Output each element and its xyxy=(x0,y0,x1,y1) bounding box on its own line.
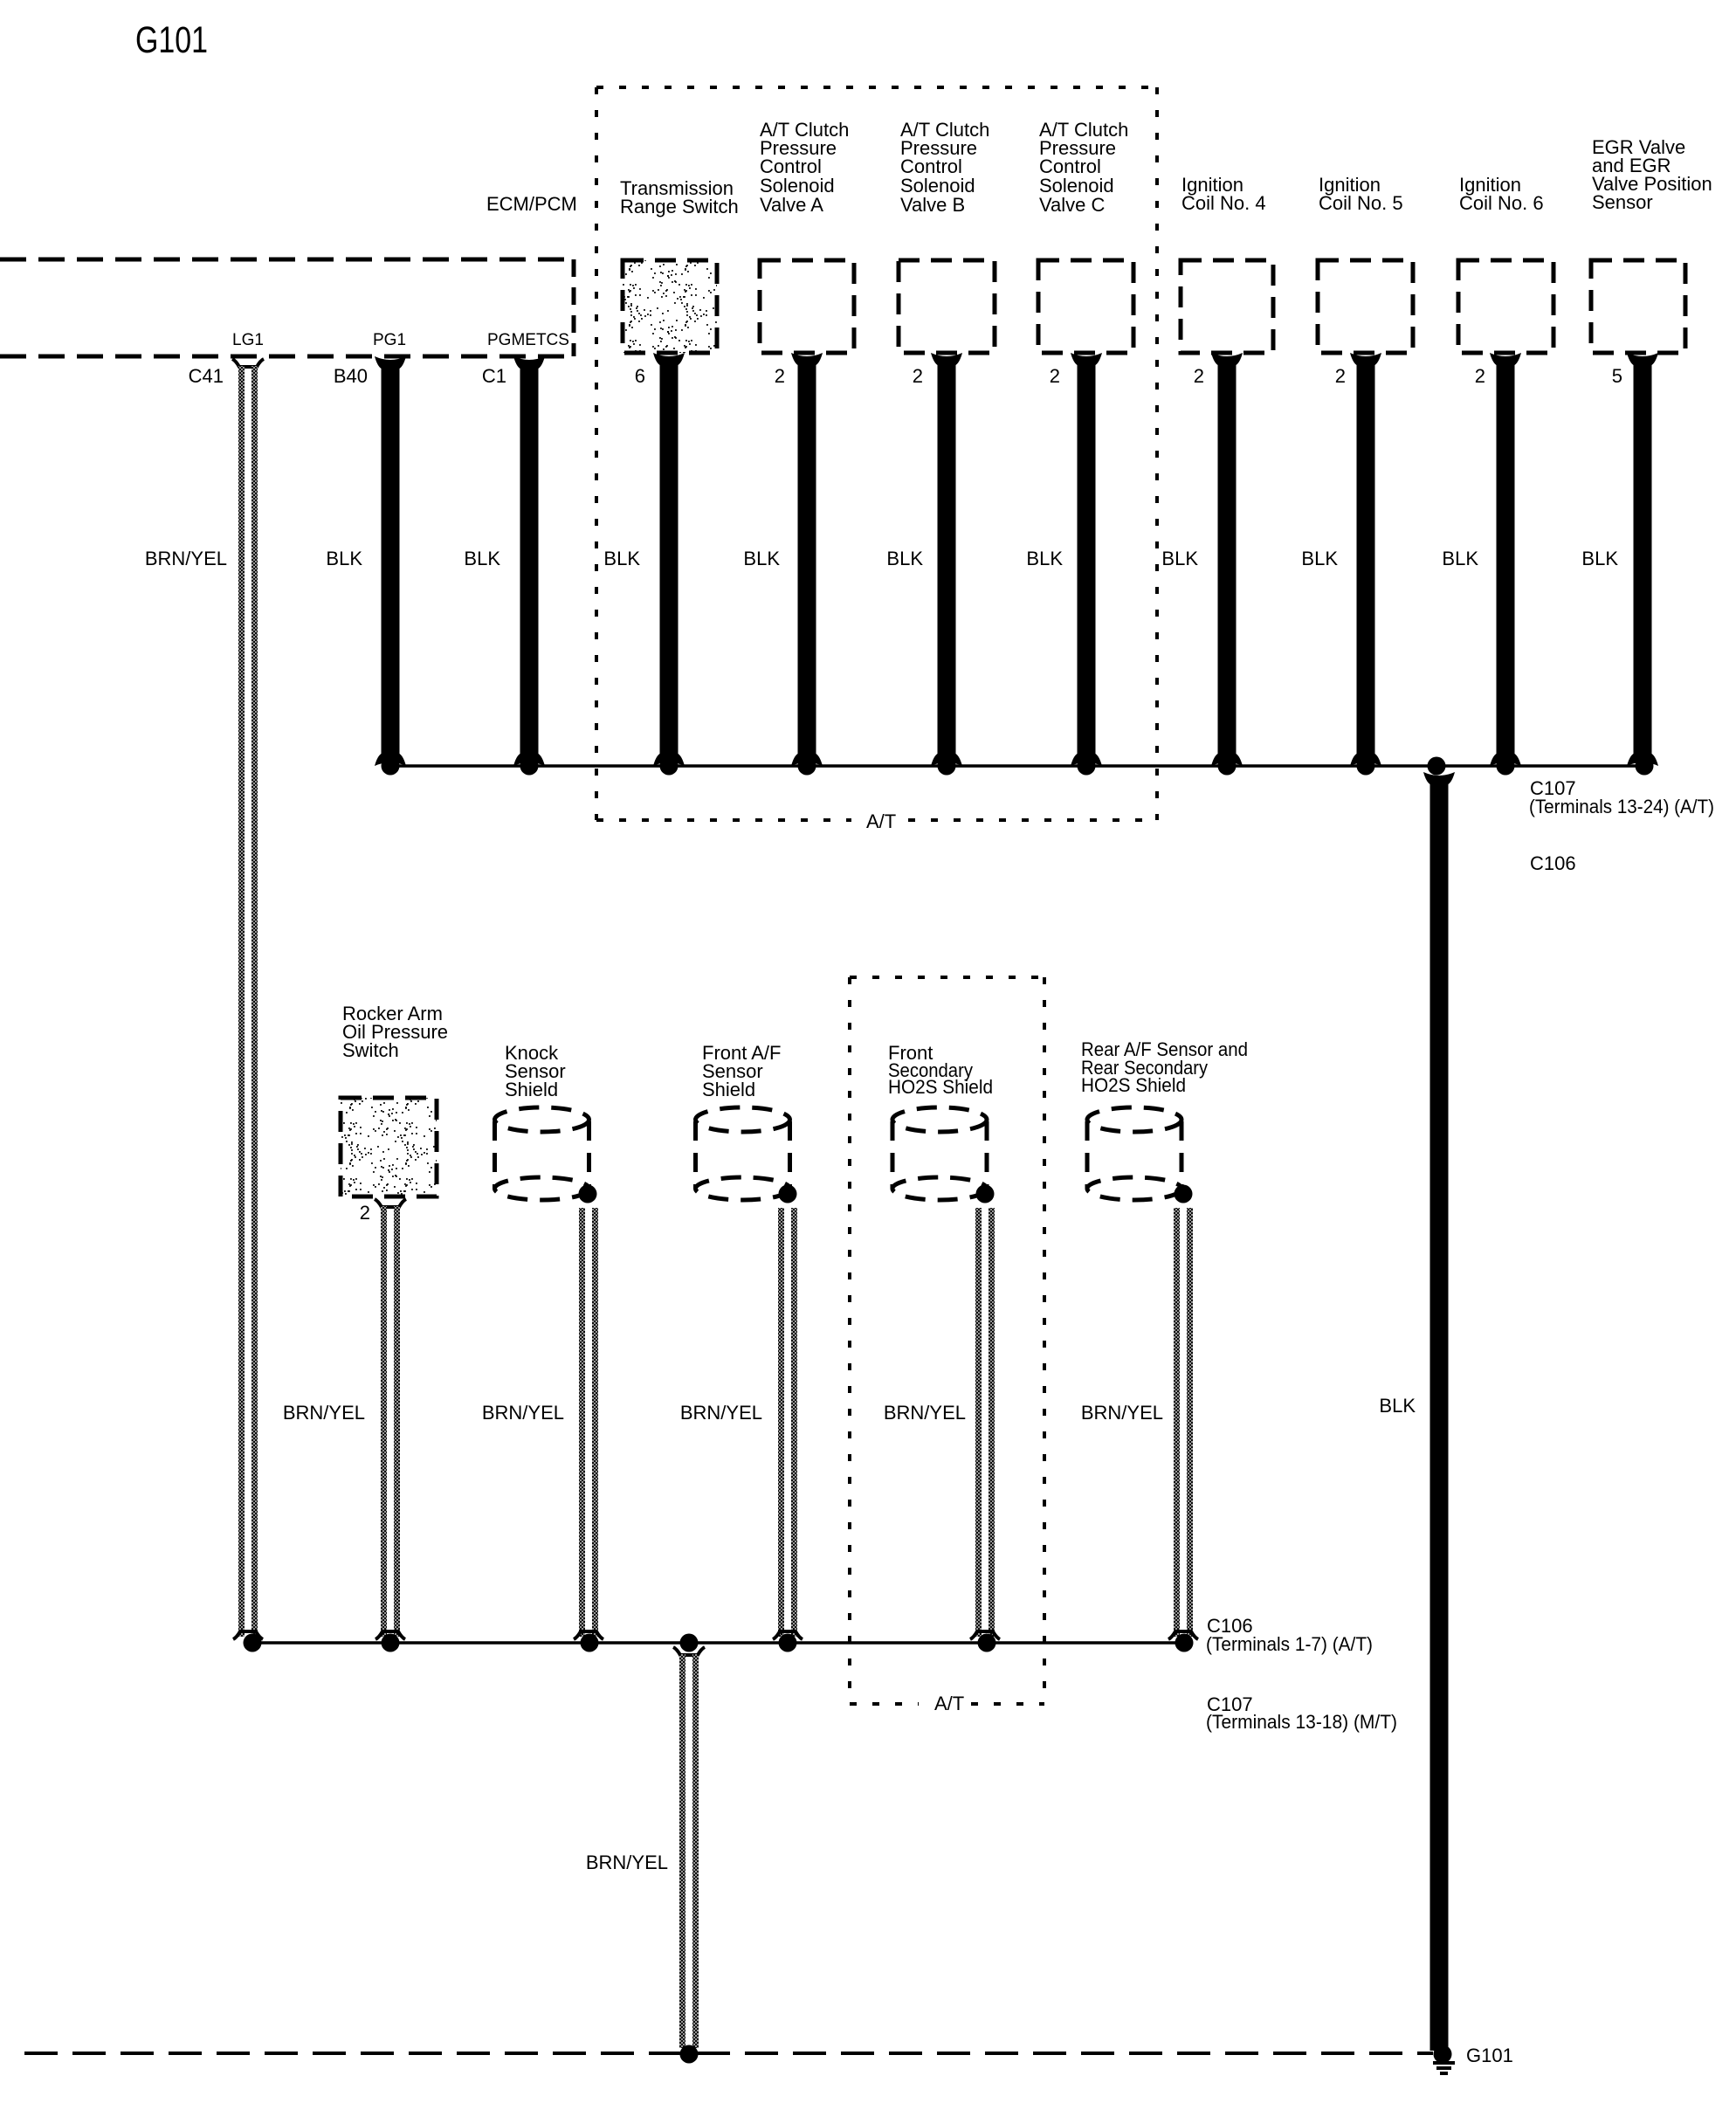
svg-text:2: 2 xyxy=(775,365,785,387)
svg-text:ECM/PCM: ECM/PCM xyxy=(486,193,577,215)
svg-text:(Terminals 1-7) (A/T): (Terminals 1-7) (A/T) xyxy=(1206,1633,1373,1655)
svg-text:2: 2 xyxy=(913,365,923,387)
svg-text:5: 5 xyxy=(1612,365,1622,387)
svg-text:Coil No. 4: Coil No. 4 xyxy=(1181,192,1266,214)
svg-text:PGMETCS: PGMETCS xyxy=(487,331,569,349)
svg-text:BLK: BLK xyxy=(1026,548,1063,569)
svg-text:BLK: BLK xyxy=(1301,548,1338,569)
svg-text:(Terminals 13-24) (A/T): (Terminals 13-24) (A/T) xyxy=(1529,796,1714,817)
svg-text:BLK: BLK xyxy=(326,548,362,569)
svg-text:Valve C: Valve C xyxy=(1039,194,1106,216)
svg-text:C1: C1 xyxy=(482,365,506,387)
svg-text:Coil No. 5: Coil No. 5 xyxy=(1319,192,1403,214)
svg-text:BLK: BLK xyxy=(1161,548,1198,569)
svg-text:BLK: BLK xyxy=(1581,548,1618,569)
svg-text:2: 2 xyxy=(1194,365,1204,387)
svg-text:BLK: BLK xyxy=(886,548,923,569)
svg-text:HO2S Shield: HO2S Shield xyxy=(1081,1074,1186,1096)
svg-text:6: 6 xyxy=(635,365,645,387)
svg-text:Switch: Switch xyxy=(342,1039,399,1061)
svg-text:BLK: BLK xyxy=(1379,1395,1416,1417)
svg-text:BLK: BLK xyxy=(603,548,640,569)
svg-text:2: 2 xyxy=(1050,365,1060,387)
svg-text:BRN/YEL: BRN/YEL xyxy=(680,1402,762,1424)
svg-text:2: 2 xyxy=(360,1202,370,1224)
svg-text:LG1: LG1 xyxy=(232,331,264,349)
svg-text:BRN/YEL: BRN/YEL xyxy=(1081,1402,1163,1424)
svg-text:Valve A: Valve A xyxy=(760,194,823,216)
svg-text:A/T: A/T xyxy=(934,1693,964,1714)
svg-text:PG1: PG1 xyxy=(373,331,406,349)
svg-text:HO2S Shield: HO2S Shield xyxy=(888,1076,993,1098)
svg-text:C106: C106 xyxy=(1530,852,1576,874)
svg-text:Shield: Shield xyxy=(702,1079,755,1100)
svg-text:Shield: Shield xyxy=(505,1079,558,1100)
svg-text:B40: B40 xyxy=(334,365,368,387)
svg-text:Valve B: Valve B xyxy=(900,194,965,216)
svg-text:BRN/YEL: BRN/YEL xyxy=(586,1852,668,1873)
svg-text:2: 2 xyxy=(1475,365,1485,387)
svg-text:BRN/YEL: BRN/YEL xyxy=(145,548,227,569)
svg-text:BLK: BLK xyxy=(1442,548,1478,569)
svg-text:BLK: BLK xyxy=(743,548,780,569)
svg-text:G101: G101 xyxy=(1466,2045,1513,2066)
svg-text:(Terminals 13-18) (M/T): (Terminals 13-18) (M/T) xyxy=(1206,1711,1397,1733)
svg-text:A/T: A/T xyxy=(866,810,896,832)
svg-text:Range Switch: Range Switch xyxy=(620,196,739,217)
svg-text:BRN/YEL: BRN/YEL xyxy=(283,1402,365,1424)
svg-text:BRN/YEL: BRN/YEL xyxy=(482,1402,564,1424)
svg-text:C41: C41 xyxy=(189,365,224,387)
svg-text:Coil No. 6: Coil No. 6 xyxy=(1459,192,1544,214)
svg-text:BRN/YEL: BRN/YEL xyxy=(884,1402,966,1424)
svg-text:2: 2 xyxy=(1335,365,1346,387)
svg-text:G101: G101 xyxy=(135,19,208,61)
svg-text:Sensor: Sensor xyxy=(1592,191,1653,213)
svg-text:BLK: BLK xyxy=(464,548,500,569)
